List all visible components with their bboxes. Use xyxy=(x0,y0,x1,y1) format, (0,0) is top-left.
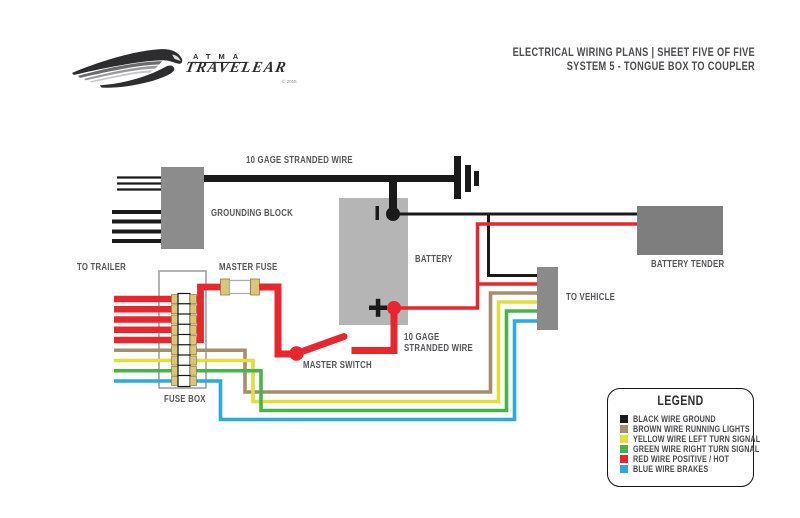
battery-negative-dot xyxy=(386,207,400,221)
switch-feed-wire xyxy=(259,287,293,354)
legend-item: GREEN WIRE RIGHT TURN SIGNAL xyxy=(620,444,753,454)
legend-box: LEGEND BLACK WIRE GROUND BROWN WIRE RUNN… xyxy=(607,388,754,487)
legend-item-label: RED WIRE POSITIVE / HOT xyxy=(633,454,729,464)
switch-pivot-dot xyxy=(289,346,303,360)
brand-copyright: © 2015 xyxy=(282,79,297,84)
legend-item-label: BLUE WIRE BRAKES xyxy=(633,464,708,474)
legend-item: RED WIRE POSITIVE / HOT xyxy=(620,454,753,464)
label-ten-gage-line1: 10 GAGE xyxy=(404,332,473,343)
label-battery: BATTERY xyxy=(415,254,453,265)
label-master-switch: MASTER SWITCH xyxy=(303,360,372,371)
legend-item-label: GREEN WIRE RIGHT TURN SIGNAL xyxy=(633,444,759,454)
red-bus-to-master-fuse xyxy=(201,287,222,343)
label-battery-tender: BATTERY TENDER xyxy=(651,259,724,270)
label-to-trailer: TO TRAILER xyxy=(77,262,126,273)
sheet-title-line1: ELECTRICAL WIRING PLANS | SHEET FIVE OF … xyxy=(513,46,755,60)
battery-positive-dot xyxy=(387,301,401,315)
grounding-block xyxy=(161,167,204,249)
black-wire-to-vehicle xyxy=(489,213,538,276)
battery-tender-block xyxy=(637,206,723,255)
label-ten-gage-wire-top: 10 GAGE STRANDED WIRE xyxy=(246,155,353,166)
legend-item: BLACK WIRE GROUND xyxy=(620,414,753,424)
legend-swatch-brown xyxy=(620,425,628,433)
legend-item: BLUE WIRE BRAKES xyxy=(620,464,753,474)
ground-wires-left xyxy=(112,178,161,242)
legend-item-label: BROWN WIRE RUNNING LIGHTS xyxy=(633,424,750,434)
legend-swatch-red xyxy=(620,455,628,463)
label-ten-gage-line2: STRANDED WIRE xyxy=(404,343,473,354)
battery-negative-mark xyxy=(376,206,380,220)
to-vehicle-connector xyxy=(537,267,558,330)
earth-ground-symbol xyxy=(454,156,479,199)
label-master-fuse: MASTER FUSE xyxy=(219,262,277,273)
legend-swatch-yellow xyxy=(620,435,628,443)
legend-swatch-blue xyxy=(620,465,628,473)
sheet-title-line2: SYSTEM 5 - TONGUE BOX TO COUPLER xyxy=(513,60,755,74)
fuse-row xyxy=(172,294,197,387)
legend-swatch-green xyxy=(620,445,628,453)
legend-item: BROWN WIRE RUNNING LIGHTS xyxy=(620,424,753,434)
brand-name-main: TRAVELEAR xyxy=(184,59,289,77)
label-fuse-box: FUSE BOX xyxy=(164,394,206,405)
label-ten-gage-wire-bottom: 10 GAGE STRANDED WIRE xyxy=(404,332,473,354)
legend-item-label: YELLOW WIRE LEFT TURN SIGNAL xyxy=(633,434,760,444)
switch-lever xyxy=(297,337,345,354)
label-to-vehicle: TO VEHICLE xyxy=(566,292,615,303)
legend-item-label: BLACK WIRE GROUND xyxy=(633,414,716,424)
label-grounding-block: GROUNDING BLOCK xyxy=(211,208,293,219)
legend-rows: BLACK WIRE GROUND BROWN WIRE RUNNING LIG… xyxy=(608,414,753,474)
master-fuse-symbol xyxy=(221,279,260,295)
wiring-diagram-canvas: ATMA TRAVELEAR © 2015 ELECTRICAL WIRING … xyxy=(0,0,800,518)
legend-title: LEGEND xyxy=(624,393,737,408)
legend-item: YELLOW WIRE LEFT TURN SIGNAL xyxy=(620,434,753,444)
legend-swatch-black xyxy=(620,415,628,423)
brand-eagle-logo xyxy=(70,47,184,89)
sheet-title: ELECTRICAL WIRING PLANS | SHEET FIVE OF … xyxy=(513,46,755,74)
